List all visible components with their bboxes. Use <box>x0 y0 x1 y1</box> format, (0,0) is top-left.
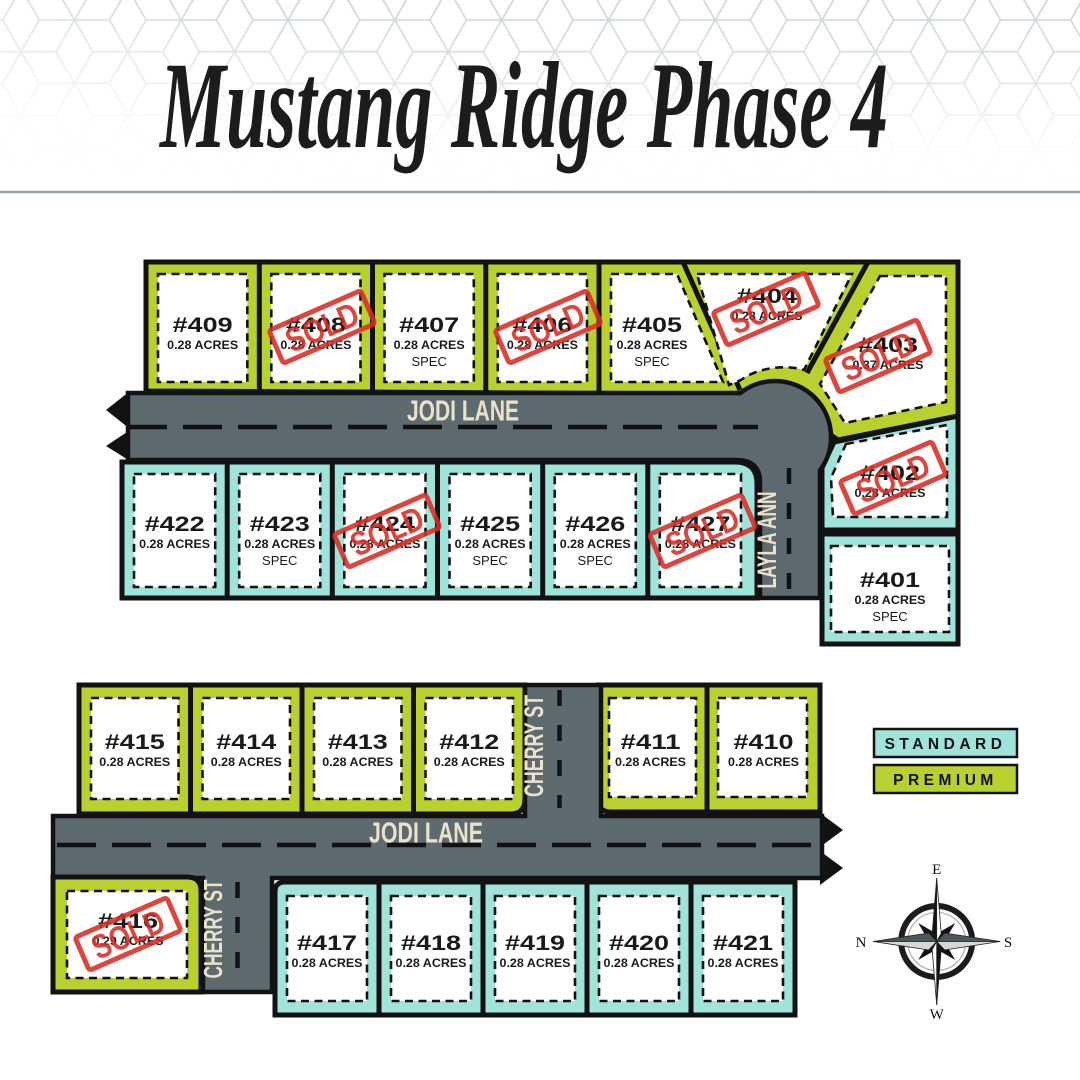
svg-text:Mustang Ridge Phase 4: Mustang Ridge Phase 4 <box>159 37 888 174</box>
svg-text:JODI LANE: JODI LANE <box>369 818 483 850</box>
svg-text:W: W <box>930 1007 945 1023</box>
svg-text:0.28 ACRES: 0.28 ACRES <box>211 757 282 769</box>
svg-text:0.28 ACRES: 0.28 ACRES <box>244 539 315 551</box>
svg-text:#401: #401 <box>860 568 920 592</box>
svg-text:0.28 ACRES: 0.28 ACRES <box>708 958 779 970</box>
svg-text:0.28 ACRES: 0.28 ACRES <box>560 539 631 551</box>
svg-text:JODI LANE: JODI LANE <box>407 396 519 428</box>
svg-text:SPEC: SPEC <box>634 354 669 369</box>
svg-text:#426: #426 <box>565 512 625 536</box>
svg-text:0.28 ACRES: 0.28 ACRES <box>396 958 467 970</box>
svg-text:0.28 ACRES: 0.28 ACRES <box>292 958 363 970</box>
svg-text:SPEC: SPEC <box>411 354 446 369</box>
svg-text:#407: #407 <box>399 313 459 337</box>
svg-text:#411: #411 <box>621 730 681 754</box>
svg-text:0.28 ACRES: 0.28 ACRES <box>322 757 393 769</box>
svg-text:SPEC: SPEC <box>262 553 297 568</box>
svg-text:#415: #415 <box>105 730 165 754</box>
svg-text:#425: #425 <box>460 512 520 536</box>
svg-text:STANDARD: STANDARD <box>885 736 1007 753</box>
svg-text:SPEC: SPEC <box>578 553 613 568</box>
svg-text:0.28 ACRES: 0.28 ACRES <box>394 340 465 352</box>
svg-text:E: E <box>932 862 941 878</box>
svg-text:#420: #420 <box>609 931 669 955</box>
svg-text:#413: #413 <box>328 730 388 754</box>
svg-text:#421: #421 <box>713 931 773 955</box>
svg-text:0.28 ACRES: 0.28 ACRES <box>728 757 799 769</box>
svg-text:CHERRY ST: CHERRY ST <box>519 695 549 797</box>
svg-text:0.28 ACRES: 0.28 ACRES <box>139 539 210 551</box>
svg-text:#409: #409 <box>173 313 233 337</box>
svg-text:0.28 ACRES: 0.28 ACRES <box>617 340 688 352</box>
svg-text:#414: #414 <box>216 730 276 754</box>
svg-text:S: S <box>1004 935 1012 951</box>
svg-text:0.28 ACRES: 0.28 ACRES <box>500 958 571 970</box>
svg-text:0.28 ACRES: 0.28 ACRES <box>855 595 926 607</box>
svg-text:#422: #422 <box>145 512 205 536</box>
svg-text:0.28 ACRES: 0.28 ACRES <box>604 958 675 970</box>
svg-text:#417: #417 <box>297 931 357 955</box>
svg-text:#423: #423 <box>250 512 310 536</box>
svg-text:#419: #419 <box>505 931 565 955</box>
svg-text:#418: #418 <box>401 931 461 955</box>
svg-text:0.28 ACRES: 0.28 ACRES <box>434 757 505 769</box>
svg-text:0.28 ACRES: 0.28 ACRES <box>455 539 526 551</box>
svg-text:0.28 ACRES: 0.28 ACRES <box>99 757 170 769</box>
svg-text:SPEC: SPEC <box>872 609 907 624</box>
svg-text:PREMIUM: PREMIUM <box>893 772 998 789</box>
svg-text:N: N <box>856 935 867 951</box>
svg-text:LAYLA ANN: LAYLA ANN <box>752 492 782 589</box>
svg-text:0.28 ACRES: 0.28 ACRES <box>167 340 238 352</box>
svg-text:SPEC: SPEC <box>472 553 507 568</box>
svg-text:#412: #412 <box>439 730 499 754</box>
svg-text:#405: #405 <box>622 313 682 337</box>
svg-text:#410: #410 <box>734 730 794 754</box>
svg-text:0.28 ACRES: 0.28 ACRES <box>615 757 686 769</box>
